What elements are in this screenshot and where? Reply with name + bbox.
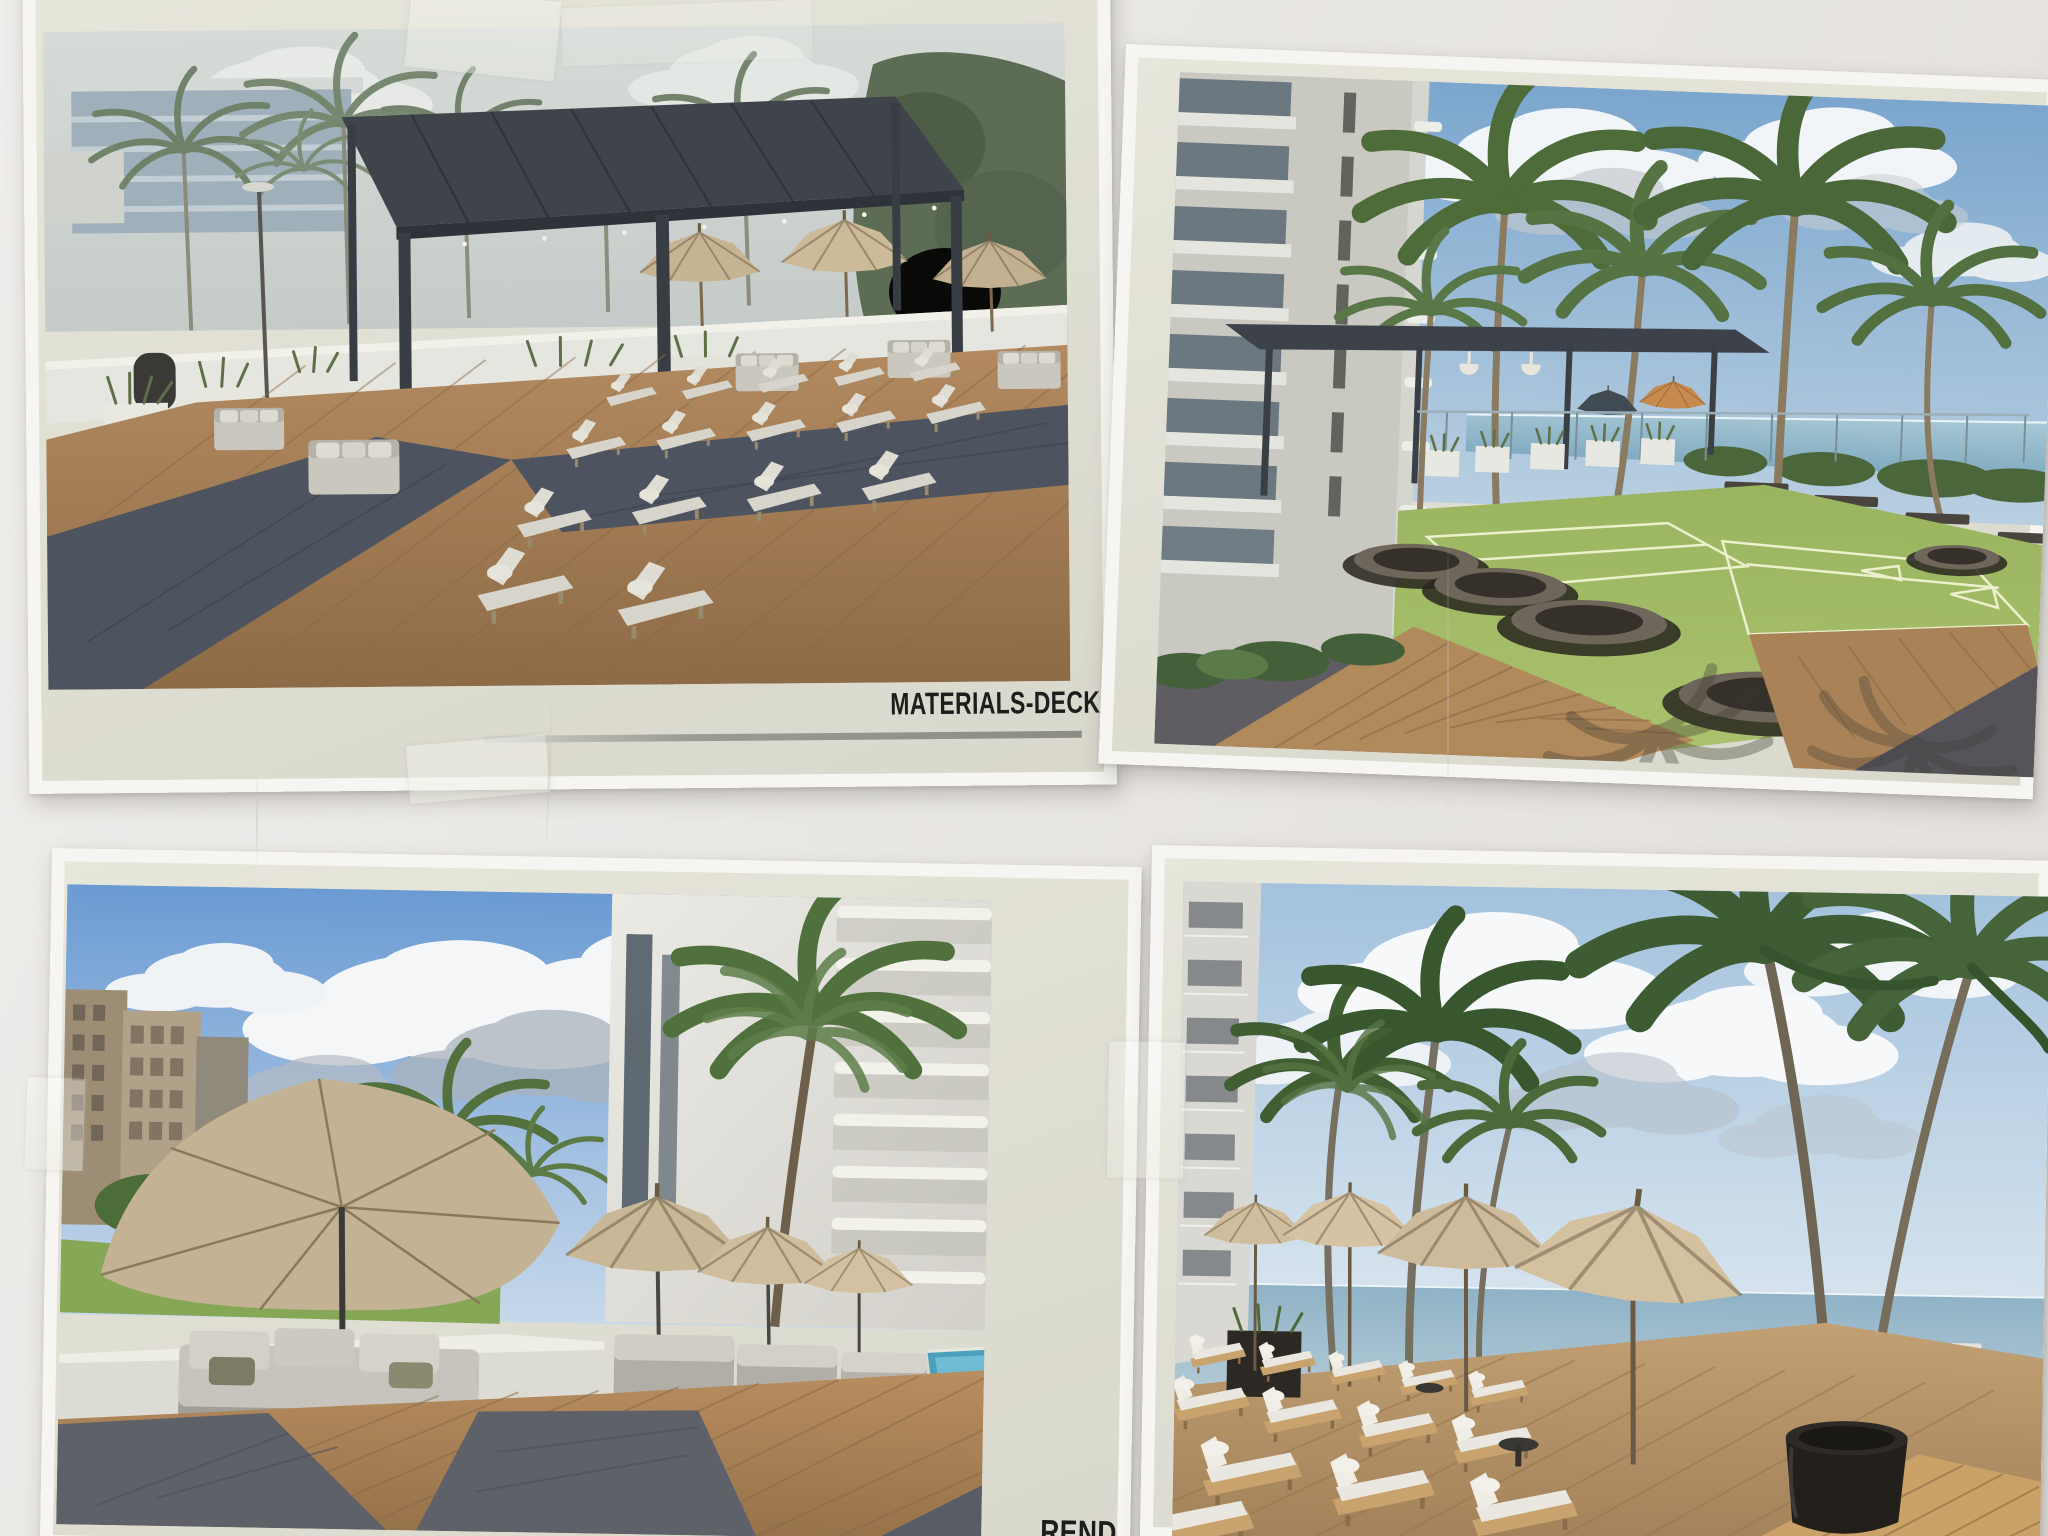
label-underline-rule bbox=[484, 731, 1082, 743]
rendering-beachfront-loungers bbox=[1172, 882, 2048, 1536]
tape-top-left-print-2 bbox=[561, 0, 813, 66]
tape-left-of-bottom-left-print bbox=[24, 1077, 85, 1171]
rendering-rooftop-lounge-deck bbox=[43, 23, 1071, 690]
print-beach-loungers bbox=[1140, 845, 2048, 1536]
rendering-lawn-games-deck bbox=[1154, 72, 2048, 777]
print-lawn-games-deck bbox=[1098, 44, 2048, 799]
wall-crease bbox=[256, 772, 258, 867]
rendering-pool-deck-umbrellas bbox=[56, 884, 992, 1536]
tape-left-edge-bottom-right-print bbox=[1107, 1041, 1185, 1178]
tape-bottom-edge-top-left-print bbox=[406, 734, 551, 804]
wall-crease bbox=[1447, 520, 1449, 860]
photo-of-rendering-boards: MATERIALS-DECK bbox=[0, 0, 2048, 1536]
building-edge bbox=[1175, 882, 1261, 1365]
print-pool-deck-umbrellas: REND bbox=[40, 848, 1142, 1536]
render-label-partial: REND bbox=[1040, 1513, 1139, 1536]
print-materials-deck: MATERIALS-DECK bbox=[22, 0, 1117, 794]
materials-deck-label: MATERIALS-DECK bbox=[817, 685, 1101, 723]
black-planter-pot bbox=[1784, 1420, 1908, 1535]
